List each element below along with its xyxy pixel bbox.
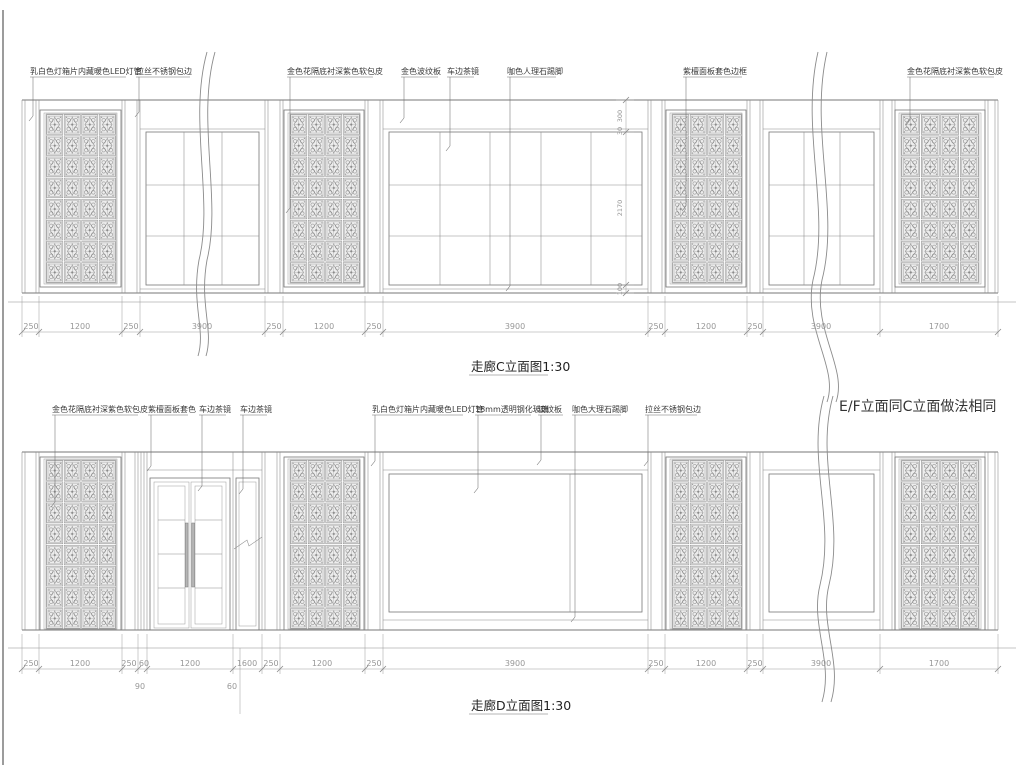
glass-bay: [389, 132, 642, 285]
leader-arrows: [29, 112, 910, 291]
sub-dim-label: 90: [135, 682, 145, 691]
dim-label: 1200: [180, 659, 200, 668]
dim-label: 3900: [192, 322, 212, 331]
elevation-d-title: 走廊D立面图1:30: [471, 698, 571, 713]
material-label: 咖色大理石踢脚: [572, 404, 628, 414]
elevation-c-title: 走廊C立面图1:30: [471, 359, 570, 374]
dim-label: 250: [747, 659, 762, 668]
dim-label: 250: [23, 322, 38, 331]
material-label: 乳白色灯箱片内藏暖色LED灯管: [30, 66, 142, 76]
double-glass-door: [150, 478, 230, 630]
material-label: 金色波纹板: [401, 66, 441, 76]
vdim-label: 100: [616, 283, 624, 295]
callout-labels-d: 金色花隔底衬深紫色软包皮 紫檀面板套色 车边茶镜 车边茶镜 乳白色灯箱片内藏暖色…: [51, 404, 701, 622]
lattice-panel: [895, 457, 985, 630]
dim-label: 1700: [929, 659, 949, 668]
elevation-d: 250 1200 250 60 1200 1600 250 1200 250 3…: [8, 396, 1016, 714]
material-label: 咖色人理石踢脚: [507, 66, 563, 76]
vdim-label: 30: [616, 127, 624, 135]
vdim-label: 300: [616, 110, 624, 122]
material-label: 紫檀面板套色: [148, 404, 196, 414]
dim-label: 250: [121, 659, 136, 668]
material-label: 车边茶镜: [240, 404, 272, 414]
door-sidelite: [234, 478, 262, 630]
dim-label: 250: [366, 322, 381, 331]
material-label: 车边茶镜: [199, 404, 231, 414]
elevation-c: 300 30 2170 100 250 1200 250 3900 250 12…: [8, 52, 1016, 402]
vertical-dimensions-c: 300 30 2170 100: [616, 97, 634, 296]
dim-label: 250: [648, 322, 663, 331]
glass-mullions: [769, 132, 874, 285]
material-label: 金色花隔底衬深紫色软包皮: [907, 66, 1003, 76]
dim-label: 250: [747, 322, 762, 331]
dim-label: 250: [648, 659, 663, 668]
dim-label: 1200: [696, 659, 716, 668]
material-label: 波纹板: [538, 404, 562, 414]
door-glass-divisions: [158, 520, 222, 588]
dim-label: 1200: [696, 322, 716, 331]
dim-label: 1200: [312, 659, 332, 668]
glass-mullions: [389, 132, 642, 285]
material-label: 金色花隔底衬深紫色软包皮: [287, 66, 383, 76]
material-label: 拉丝不锈钢包边: [645, 404, 701, 414]
lattice-panel: [666, 457, 746, 630]
door-handle: [185, 523, 188, 587]
material-label: 金色花隔底衬深紫色软包皮: [52, 404, 148, 414]
dim-label: 250: [263, 659, 278, 668]
lattice-panel: [284, 110, 364, 287]
dim-label: 1200: [314, 322, 334, 331]
dim-label: 1600: [237, 659, 257, 668]
dim-label: 250: [123, 322, 138, 331]
dim-label: 3900: [811, 659, 831, 668]
glass-bay: [389, 474, 642, 612]
lattice-panel: [40, 457, 121, 630]
dim-label: 3900: [505, 322, 525, 331]
dim-label: 1200: [70, 322, 90, 331]
pier-lines: [22, 452, 998, 630]
glass-bay: [769, 132, 874, 285]
dim-label: 250: [266, 322, 281, 331]
drawing-sheet: 300 30 2170 100 250 1200 250 3900 250 12…: [0, 0, 1024, 768]
lattice-panel: [895, 110, 985, 287]
wall-structure-d: [8, 452, 1016, 648]
lattice-panel: [40, 110, 121, 287]
wall-structure-c: [8, 100, 1016, 302]
sub-dim-label: 60: [227, 682, 237, 691]
door-handle: [192, 523, 195, 587]
leader-lines: [33, 77, 910, 286]
material-label: 车边茶镜: [447, 66, 479, 76]
material-label: 紫檀面板套色边框: [683, 66, 747, 76]
dim-label: 60: [139, 659, 149, 668]
material-label: 乳白色灯箱片内藏暖色LED灯管: [372, 404, 484, 414]
break-line: [811, 52, 838, 402]
dim-label: 250: [23, 659, 38, 668]
dim-label: 250: [366, 659, 381, 668]
vdim-label: 2170: [616, 200, 624, 217]
glass-bay: [146, 132, 259, 285]
break-line: [197, 52, 215, 356]
break-line: [817, 396, 834, 702]
material-label: 拉丝不锈钢包边: [136, 66, 192, 76]
lattice-panel: [666, 110, 746, 287]
dim-label: 1700: [929, 322, 949, 331]
sidelite-break-symbol: [234, 537, 262, 549]
dim-label: 1200: [70, 659, 90, 668]
dim-label: 3900: [505, 659, 525, 668]
dim-label: 3900: [811, 322, 831, 331]
lattice-panel: [284, 457, 364, 630]
ef-elevation-note: E/F立面同C立面做法相同: [839, 399, 996, 415]
glass-mullions: [146, 132, 259, 285]
